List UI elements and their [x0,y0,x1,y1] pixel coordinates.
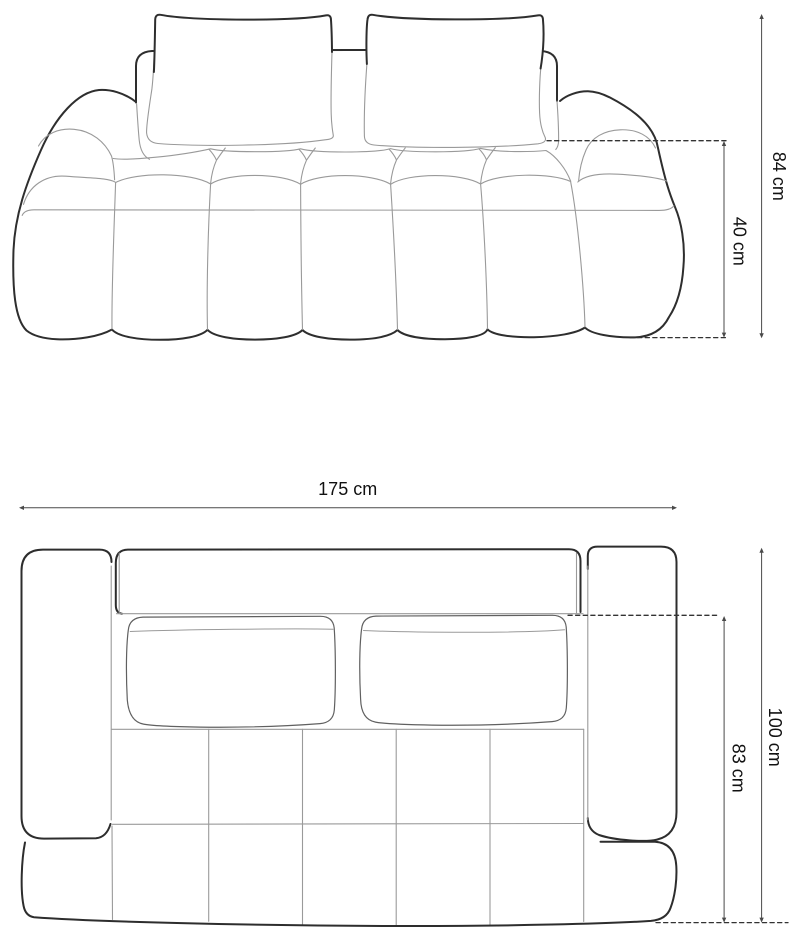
svg-text:84 cm: 84 cm [769,152,789,201]
svg-text:100 cm: 100 cm [765,708,785,767]
svg-text:40 cm: 40 cm [730,217,750,266]
svg-text:83 cm: 83 cm [729,744,749,793]
svg-text:175 cm: 175 cm [318,479,377,499]
